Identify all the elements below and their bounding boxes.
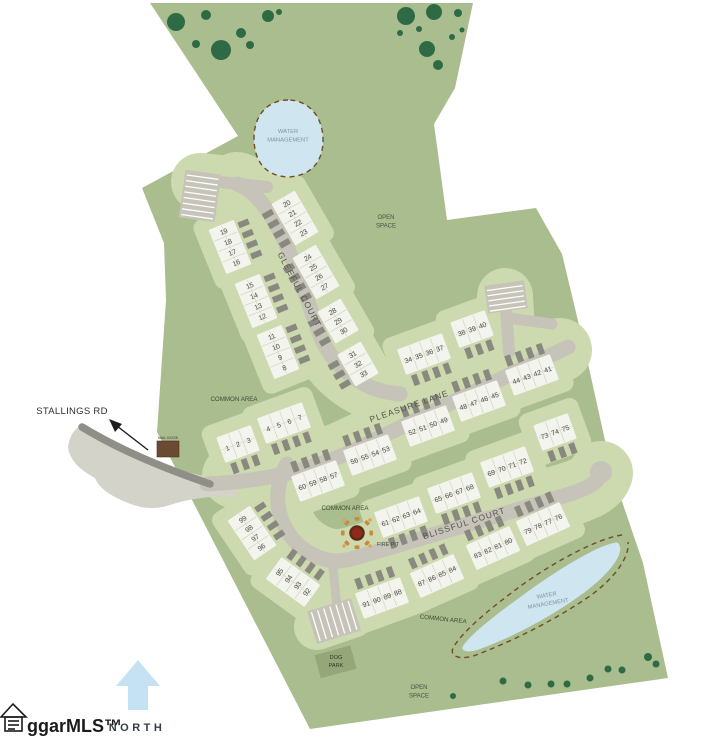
parking-northwest <box>179 170 221 223</box>
tree-icon <box>500 678 507 685</box>
road-parking-stub <box>333 567 337 608</box>
common-area-firepit: COMMON AREA <box>321 505 369 512</box>
tree-icon <box>236 28 246 38</box>
tree-icon <box>397 30 403 36</box>
house-icon <box>1 704 26 731</box>
tree-icon <box>211 40 231 60</box>
tree-icon <box>454 9 462 17</box>
tree-icon <box>416 26 422 32</box>
tree-icon <box>450 693 456 699</box>
site-map-page: 1918171615141312111098202122232425262728… <box>0 0 727 736</box>
tree-icon <box>397 7 415 25</box>
tree-icon <box>605 666 612 673</box>
fire-pit-label: FIRE PIT <box>377 542 400 548</box>
tree-icon <box>167 13 185 31</box>
parking-northeast <box>484 280 528 313</box>
mail-kiosk <box>157 441 179 457</box>
tree-icon <box>276 9 282 15</box>
mail-kiosk-label: MAIL KIOSK <box>158 436 179 440</box>
tree-icon <box>548 681 555 688</box>
tree-icon <box>525 682 532 689</box>
tree-icon <box>262 10 274 22</box>
stallings-rd-label: STALLINGS RD <box>36 406 108 417</box>
fire-pit-circle <box>351 527 364 540</box>
tree-icon <box>644 653 652 661</box>
north-arrow-icon <box>116 660 160 710</box>
stallings-arrowhead <box>109 419 122 432</box>
common-area-west: COMMON AREA <box>210 396 258 403</box>
tree-icon <box>653 661 660 668</box>
tree-icon <box>587 675 594 682</box>
tree-icon <box>426 4 442 20</box>
tree-icon <box>564 681 571 688</box>
tree-icon <box>246 41 254 49</box>
tree-icon <box>619 667 626 674</box>
tree-icon <box>460 28 465 33</box>
tree-icon <box>449 34 455 40</box>
tree-icon <box>419 41 435 57</box>
tree-icon <box>201 10 211 20</box>
tree-icon <box>433 60 443 70</box>
road-blissful-bulb <box>590 461 612 483</box>
road-northeast-bar <box>508 318 552 324</box>
tree-icon <box>192 40 200 48</box>
site-map: 1918171615141312111098202122232425262728… <box>0 0 727 736</box>
mls-logo-text: ggarMLS™ <box>27 716 122 736</box>
mls-logo: ggarMLS™ <box>1 704 122 736</box>
